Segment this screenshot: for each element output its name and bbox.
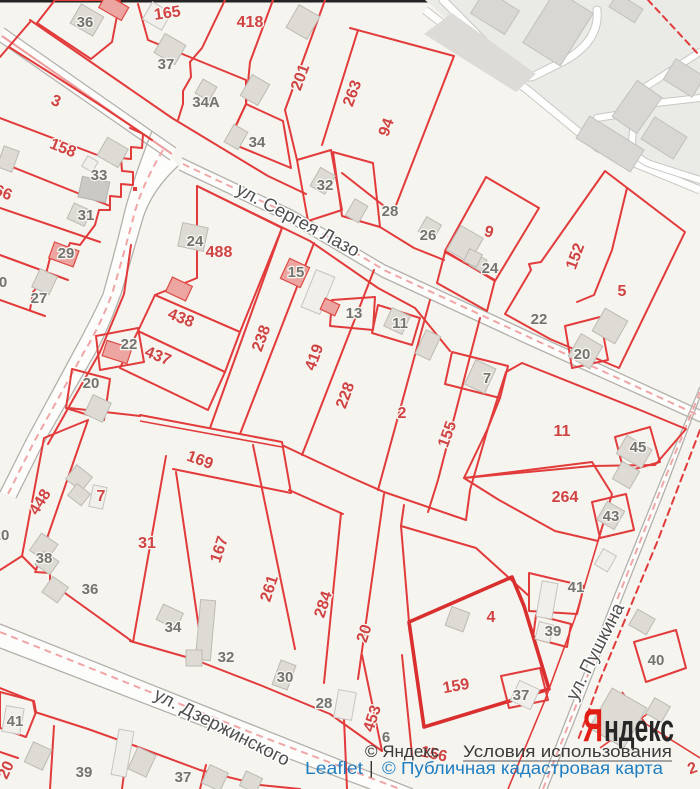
svg-text:488: 488: [206, 244, 233, 261]
svg-text:37: 37: [158, 56, 175, 73]
svg-text:5: 5: [618, 283, 627, 300]
svg-text:40: 40: [648, 652, 665, 669]
svg-text:418: 418: [237, 14, 264, 31]
svg-text:2: 2: [398, 405, 407, 422]
svg-text:39: 39: [76, 764, 93, 781]
svg-text:41: 41: [568, 579, 585, 596]
svg-text:22: 22: [121, 336, 138, 353]
svg-text:28: 28: [316, 695, 333, 712]
svg-text:31: 31: [78, 207, 95, 224]
svg-text:0: 0: [0, 274, 7, 291]
svg-text:36: 36: [77, 14, 94, 31]
svg-text:24: 24: [187, 233, 204, 250]
svg-text:36: 36: [82, 581, 99, 598]
svg-text:34: 34: [165, 619, 182, 636]
svg-text:32: 32: [218, 649, 235, 666]
svg-text:38: 38: [36, 550, 53, 567]
svg-text:20: 20: [574, 346, 591, 363]
svg-text:26: 26: [420, 227, 437, 244]
svg-text:24: 24: [482, 260, 499, 277]
svg-text:34А: 34А: [192, 94, 220, 111]
svg-text:11: 11: [392, 315, 408, 332]
svg-text:37: 37: [175, 769, 192, 786]
svg-text:32: 32: [317, 177, 334, 194]
svg-text:15: 15: [288, 264, 305, 281]
svg-text:Leaflet|© Публичная кадастрова: Leaflet|© Публичная кадастровая карта: [305, 758, 663, 778]
svg-text:45: 45: [630, 439, 647, 456]
svg-text:20: 20: [0, 527, 9, 544]
svg-text:33: 33: [91, 167, 108, 184]
svg-text:39: 39: [545, 623, 562, 640]
svg-text:7: 7: [483, 370, 491, 387]
svg-text:22: 22: [531, 311, 548, 328]
svg-text:28: 28: [382, 203, 399, 220]
svg-text:34: 34: [249, 134, 266, 151]
svg-text:41: 41: [7, 713, 24, 730]
svg-text:4: 4: [487, 609, 496, 626]
svg-text:30: 30: [277, 669, 294, 686]
svg-text:43: 43: [603, 508, 620, 525]
svg-text:7: 7: [97, 488, 106, 505]
svg-text:11: 11: [554, 423, 571, 440]
svg-text:13: 13: [346, 305, 363, 322]
svg-text:37: 37: [513, 687, 530, 704]
svg-text:31: 31: [138, 535, 156, 552]
svg-text:29: 29: [58, 245, 75, 262]
svg-text:264: 264: [552, 489, 579, 506]
svg-text:20: 20: [83, 375, 100, 392]
svg-text:27: 27: [31, 290, 48, 307]
